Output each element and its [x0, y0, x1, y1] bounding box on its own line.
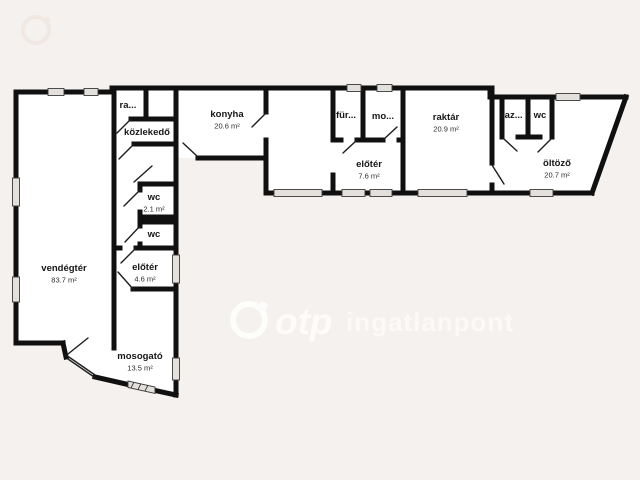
- room-label-mosogato: mosogató: [117, 351, 163, 362]
- room-area-eloter-1: 7.6 m²: [358, 172, 380, 181]
- building-footprint: [16, 88, 626, 395]
- room-area-wc-1: 2.1 m²: [143, 205, 165, 214]
- room-label-eloter-2: előtér: [132, 262, 158, 273]
- room-label-konyha: konyha: [210, 109, 244, 120]
- room-area-raktar: 20.9 m²: [433, 125, 459, 134]
- corner-logo-icon: [23, 17, 50, 43]
- room-area-mosogato: 13.5 m²: [127, 364, 153, 373]
- room-label-kaz: kaz...: [499, 110, 522, 121]
- room-label-mo: mo...: [372, 111, 394, 122]
- watermark-logo-icon: [233, 302, 268, 337]
- room-area-oltozo: 20.7 m²: [544, 171, 570, 180]
- room-label-wc-right: wc: [533, 110, 547, 121]
- room-area-eloter-2: 4.6 m²: [134, 275, 156, 284]
- room-label-wc-1: wc: [147, 192, 161, 203]
- room-label-wc-2: wc: [147, 229, 161, 240]
- watermark-brand-text: ingatlanpont: [346, 307, 514, 337]
- room-label-oltozo: öltöző: [543, 158, 571, 169]
- room-label-kozlekedo: közlekedő: [124, 127, 170, 138]
- watermark-logo-text: otp: [275, 301, 333, 342]
- room-area-vendegter: 83.7 m²: [51, 276, 77, 285]
- room-label-vendegter: vendégtér: [41, 263, 87, 274]
- floorplan-canvas: otp ingatlanpont ra...közlekedőkonyha20.…: [0, 0, 640, 480]
- room-label-fur: für...: [336, 110, 356, 121]
- room-label-raktar: raktár: [433, 112, 460, 123]
- room-label-ra: ra...: [120, 100, 137, 111]
- watermark: otp ingatlanpont: [233, 301, 514, 342]
- floorplan-page: otp ingatlanpont ra...közlekedőkonyha20.…: [0, 0, 640, 480]
- room-label-eloter-1: előtér: [356, 159, 382, 170]
- room-area-konyha: 20.6 m²: [214, 122, 240, 131]
